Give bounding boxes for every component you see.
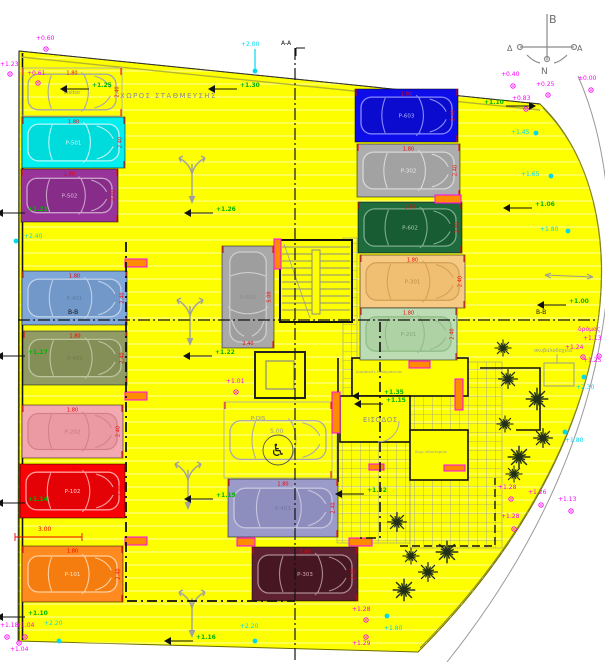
parking-stall-p502: P-5021.802.40	[21, 169, 118, 222]
parking-stall-p602: P-6021.802.40	[358, 202, 462, 253]
structural-pier	[125, 537, 147, 545]
svg-text:+2.00: +2.00	[241, 41, 260, 48]
stall-label: P-201	[401, 332, 417, 338]
svg-text:+1.06: +1.06	[535, 201, 555, 208]
stall-dim-top: 1.80	[69, 334, 80, 340]
stall-label: P-401	[67, 296, 83, 302]
structural-pier	[435, 195, 461, 203]
svg-text:+1.28: +1.28	[498, 484, 517, 491]
road-label: δρόμος	[578, 326, 600, 333]
svg-text:+0.83: +0.83	[512, 95, 531, 102]
svg-text:+1.15: +1.15	[386, 397, 406, 404]
structural-pier	[125, 259, 147, 267]
compass-north-label: B	[549, 13, 557, 26]
svg-text:+1.16: +1.16	[196, 634, 216, 641]
level-marker-magenta: +1.23	[0, 61, 19, 76]
stall-dim-top: 1.80	[403, 311, 414, 317]
svg-text:+1.80: +1.80	[565, 437, 584, 444]
svg-text:+1.23: +1.23	[0, 61, 19, 68]
stall-dim-top: 1.80	[401, 92, 412, 98]
stall-label: P-302	[401, 169, 417, 175]
room-a-label: Διαμπερές Μπάρμπεκιου	[356, 369, 402, 374]
svg-text:+2.30: +2.30	[576, 384, 595, 391]
stall-dim-top: 1.80	[67, 549, 78, 555]
bins-label: σκυβαλοδοχεία	[534, 347, 573, 354]
svg-text:+0.61: +0.61	[27, 70, 46, 77]
svg-text:+1.32: +1.32	[367, 487, 387, 494]
svg-text:3.00: 3.00	[38, 526, 52, 533]
parking-stall-p603: P-6031.802.40	[355, 89, 458, 142]
svg-text:+1.10: +1.10	[28, 610, 48, 617]
stall-dim-top: 1.80	[68, 120, 79, 126]
stall-label: P-603	[399, 114, 415, 120]
stall-dim-top: 1.80	[66, 71, 77, 77]
svg-text:+1.26: +1.26	[528, 489, 547, 496]
compass-south-label: N	[541, 67, 548, 77]
svg-text:+1.29: +1.29	[352, 640, 371, 647]
structural-pier	[409, 361, 430, 368]
stall-label: P-402	[67, 356, 83, 362]
stall-dim-bottom: 2.40	[242, 341, 253, 347]
stall-dim-side: 2.40	[351, 568, 357, 579]
svg-text:+1.21: +1.21	[28, 206, 48, 213]
svg-text:+1.22: +1.22	[215, 349, 235, 356]
entrance-label: ΕΙΣΟΔΟΣ	[363, 416, 398, 424]
stall-dim-top: 1.80	[403, 147, 414, 153]
parking-stall-p403: P-4031.802.40	[228, 479, 338, 537]
level-marker-magenta: +0.25	[536, 81, 555, 97]
level-marker-magenta: +1.13	[583, 335, 602, 342]
stall-dim-side: 2.40	[453, 165, 459, 176]
stall-dim-top: 1.80	[67, 408, 78, 414]
stall-dim-side: 2.40	[120, 352, 126, 363]
section-bb-right-label: B-B	[536, 309, 546, 316]
parking-stall-p501: P-5011.802.40	[22, 117, 125, 168]
parking-stall-p102: P-1021.802.40	[20, 464, 125, 518]
stall-label: P-502	[62, 194, 78, 200]
svg-text:+0.40: +0.40	[501, 71, 520, 78]
svg-text:+1.28: +1.28	[352, 606, 371, 613]
svg-text:+0.25: +0.25	[536, 81, 555, 88]
parking-stall-p101: P-1011.802.40	[22, 546, 123, 602]
stall-dim-side: 2.40	[451, 110, 457, 121]
compass	[518, 14, 577, 63]
level-marker-magenta: +1.04	[10, 641, 29, 653]
parking-stall-p302: P-3021.802.40	[357, 144, 460, 197]
svg-text:+1.04: +1.04	[10, 646, 29, 653]
svg-text:+1.35: +1.35	[384, 389, 404, 396]
stall-label: P-102	[65, 489, 81, 495]
stall-dim-side: 2.40	[331, 502, 337, 513]
svg-text:+0.60: +0.60	[36, 35, 55, 42]
structural-pier	[349, 538, 372, 546]
stall-label: P-DIS	[251, 416, 266, 422]
svg-text:+1.80: +1.80	[540, 226, 559, 233]
structural-pier	[444, 465, 465, 471]
stall-dim-side: 2.40	[116, 426, 122, 437]
svg-text:+1.00: +1.00	[569, 298, 589, 305]
structural-pier	[455, 379, 463, 410]
floor-plan-canvas: visitor1.802.40P-5011.802.40P-5021.802.4…	[0, 0, 605, 662]
stall-dim-top: 1.80	[404, 205, 415, 211]
parking-stall-p202: P-2021.802.40	[22, 405, 123, 458]
svg-text:+2.40: +2.40	[24, 233, 43, 240]
svg-text:+1.19: +1.19	[216, 492, 236, 499]
structural-pier	[125, 392, 147, 400]
svg-text:+1.04: +1.04	[16, 622, 35, 629]
svg-text:+2.20: +2.20	[44, 620, 63, 627]
stair-core	[280, 240, 352, 322]
svg-text:+1.65: +1.65	[521, 171, 540, 178]
svg-text:+1.13: +1.13	[558, 496, 577, 503]
stall-label: P-601	[240, 295, 256, 301]
stall-dim-top: 1.80	[67, 467, 78, 473]
stall-label: P-403	[275, 506, 291, 512]
stall-dim-top: 1.80	[64, 172, 75, 178]
svg-text:+1.01: +1.01	[226, 378, 245, 385]
stall-label: P-301	[405, 280, 421, 286]
svg-text:5.00: 5.00	[270, 428, 284, 435]
stall-dim-side: 2.40	[118, 485, 124, 496]
stall-label: P-602	[402, 226, 418, 232]
structural-pier	[369, 464, 384, 470]
structural-pier	[332, 392, 340, 433]
dimension: 5.00	[270, 428, 284, 435]
parking-stall-p401: P-4011.802.40	[22, 271, 127, 325]
parking-stall-p201: P-2011.802.40	[360, 308, 457, 360]
stall-dim-side: 2.40	[120, 292, 126, 303]
parking-stall-p303: P-3031.802.40	[252, 547, 358, 601]
stall-label: P-501	[66, 141, 82, 147]
stall-dim-side: 2.40	[455, 222, 461, 233]
stall-dim-top: 1.80	[69, 274, 80, 280]
stall-dim-top: 1.80	[299, 550, 310, 556]
svg-text:+1.10: +1.10	[484, 99, 504, 106]
stall-label: P-101	[65, 572, 81, 578]
parking-stall-p402: P-4021.802.40	[23, 331, 127, 385]
svg-text:+1.80: +1.80	[384, 625, 403, 632]
stall-dim-side: 2.40	[111, 190, 117, 201]
level-marker-magenta: +0.60	[36, 35, 55, 51]
stall-dim-side: 2.40	[118, 137, 124, 148]
stall-dim-side: 5.00	[267, 291, 273, 302]
svg-text:+1.26: +1.26	[216, 206, 236, 213]
svg-text:+1.30: +1.30	[240, 82, 260, 89]
compass-west-label: Δ	[507, 44, 513, 53]
level-marker-magenta: +1.13	[558, 496, 577, 513]
stall-dim-top: 1.80	[277, 482, 288, 488]
svg-text:+1.14: +1.14	[28, 496, 48, 503]
svg-text:+1.13: +1.13	[583, 335, 602, 342]
structural-pier	[274, 239, 281, 269]
parking-stall-p301: P-3011.802.40	[360, 255, 465, 308]
room-b-label: δωμ. πλυντηρίου	[415, 449, 447, 454]
stall-label: P-202	[65, 430, 81, 436]
level-marker-cyan: +1.80	[563, 430, 584, 444]
level-marker-cyan: +2.00	[241, 41, 260, 73]
elevator-shaft	[255, 352, 305, 398]
svg-text:+2.20: +2.20	[240, 623, 259, 630]
svg-text:+1.17: +1.17	[28, 349, 48, 356]
structural-pier	[237, 538, 255, 546]
stall-dim-side: 2.40	[116, 568, 122, 579]
section-bb-left-label: B-B	[68, 309, 78, 316]
compass-east-label: A	[577, 44, 583, 53]
parking-area-label: ΧΩΡΟΣ ΣΤΑΘΜΕΥΣΗΣ	[120, 92, 217, 100]
parking-plan-drawing: visitor1.802.40P-5011.802.40P-5021.802.4…	[0, 0, 605, 662]
level-marker-magenta: +0.40	[501, 71, 520, 88]
parking-stall-p601: P-6015.002.40	[222, 246, 274, 348]
stall-dim-top: 1.80	[407, 258, 418, 264]
svg-text:♿: ♿	[270, 441, 285, 461]
svg-text:+1.28: +1.28	[501, 513, 520, 520]
stall-dim-side: 2.40	[458, 276, 464, 287]
svg-text:+1.25: +1.25	[92, 82, 112, 89]
svg-text:±0.00: ±0.00	[578, 75, 597, 82]
section-aa-label: A-A	[281, 40, 292, 47]
stall-label: P-303	[297, 572, 313, 578]
svg-text:+1.45: +1.45	[511, 129, 530, 136]
stall-dim-side: 2.40	[450, 328, 456, 339]
